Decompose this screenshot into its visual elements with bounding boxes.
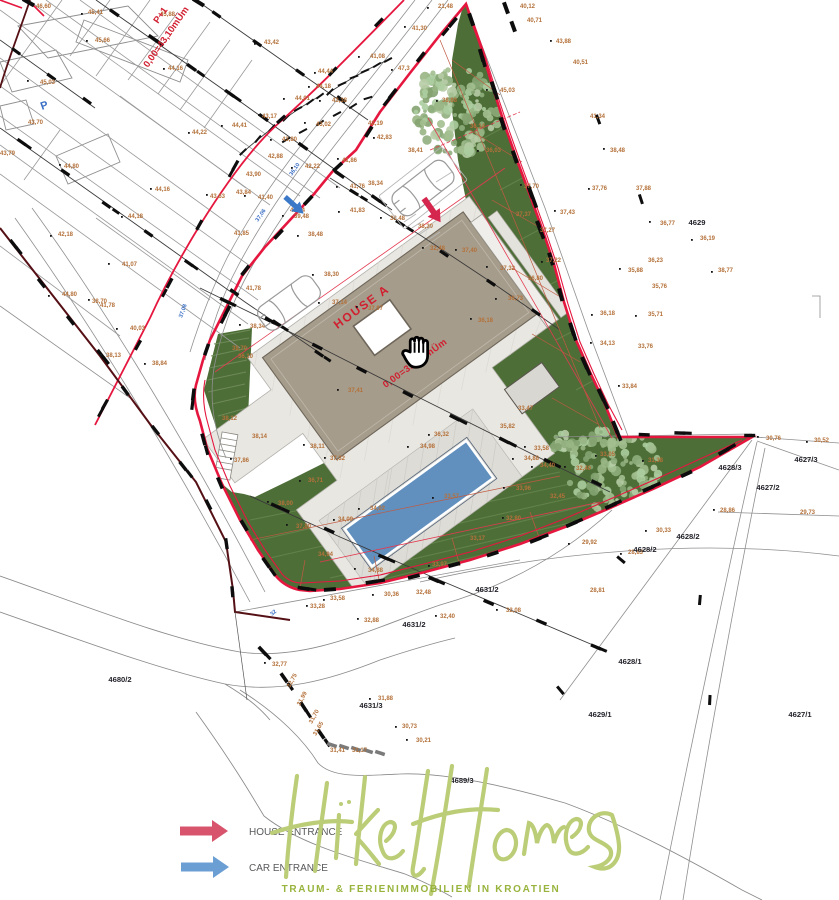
svg-text:33,84: 33,84: [622, 384, 638, 390]
svg-text:32,88: 32,88: [364, 618, 380, 624]
svg-text:4628/2: 4628/2: [633, 545, 656, 554]
svg-text:44,41: 44,41: [232, 123, 248, 129]
svg-text:44,18: 44,18: [128, 214, 144, 220]
svg-text:43,02: 43,02: [316, 122, 332, 128]
svg-text:44,80: 44,80: [62, 292, 78, 298]
svg-text:31,41: 31,41: [330, 748, 346, 754]
svg-text:34,88: 34,88: [368, 568, 384, 574]
svg-text:32,40: 32,40: [576, 466, 592, 472]
svg-text:38,13: 38,13: [106, 353, 122, 359]
svg-text:4627/3: 4627/3: [794, 455, 817, 464]
svg-text:34,88: 34,88: [524, 456, 540, 462]
svg-text:45,03: 45,03: [40, 80, 56, 86]
svg-text:44,16: 44,16: [168, 66, 184, 72]
svg-text:32,48: 32,48: [416, 590, 432, 596]
svg-text:4680/2: 4680/2: [108, 675, 131, 684]
svg-text:4628/2: 4628/2: [676, 532, 699, 541]
svg-text:38,00: 38,00: [278, 501, 294, 507]
svg-text:37,41: 37,41: [348, 388, 364, 394]
svg-text:34,09: 34,09: [338, 517, 354, 523]
svg-text:42,19: 42,19: [368, 121, 384, 127]
svg-text:47,3: 47,3: [398, 66, 410, 72]
svg-text:44,80: 44,80: [64, 164, 80, 170]
svg-text:37,32: 37,32: [500, 266, 516, 272]
svg-text:43,63: 43,63: [210, 194, 226, 200]
svg-text:41,83: 41,83: [350, 208, 366, 214]
svg-text:37,86: 37,86: [234, 458, 250, 464]
svg-text:38,84: 38,84: [152, 361, 168, 367]
svg-text:44,01: 44,01: [295, 96, 311, 102]
svg-text:44,22: 44,22: [192, 130, 208, 136]
svg-text:28,81: 28,81: [590, 588, 606, 594]
svg-text:36,73: 36,73: [508, 296, 524, 302]
svg-text:36,80: 36,80: [528, 276, 544, 282]
svg-text:37,76: 37,76: [592, 186, 608, 192]
svg-text:30,21: 30,21: [416, 738, 432, 744]
svg-text:37,40: 37,40: [462, 248, 478, 254]
svg-text:43,80: 43,80: [282, 137, 298, 143]
svg-text:33,28: 33,28: [310, 604, 326, 610]
svg-text:4627/1: 4627/1: [788, 710, 812, 719]
svg-text:37,43: 37,43: [560, 210, 576, 216]
svg-text:46,60: 46,60: [36, 4, 52, 10]
svg-text:43,88: 43,88: [556, 39, 572, 45]
svg-text:38,88: 38,88: [442, 98, 458, 104]
svg-text:33,17: 33,17: [470, 536, 486, 542]
svg-text:41,08: 41,08: [370, 54, 386, 60]
svg-text:36,03: 36,03: [486, 148, 502, 154]
svg-text:38,77: 38,77: [718, 268, 734, 274]
svg-text:21,48: 21,48: [438, 4, 454, 10]
svg-text:44,16: 44,16: [155, 187, 171, 193]
svg-text:43,84: 43,84: [236, 190, 252, 196]
svg-text:38,34: 38,34: [250, 324, 266, 330]
svg-text:43,70: 43,70: [28, 120, 44, 126]
svg-text:35,71: 35,71: [648, 312, 664, 318]
svg-text:4631/3: 4631/3: [359, 701, 382, 710]
svg-text:30,36: 30,36: [384, 592, 400, 598]
svg-text:38,30: 38,30: [324, 272, 340, 278]
svg-text:28,86: 28,86: [720, 508, 736, 514]
svg-text:41,76: 41,76: [350, 184, 366, 190]
svg-text:32,08: 32,08: [506, 608, 522, 614]
svg-text:30,73: 30,73: [402, 724, 418, 730]
svg-text:43,17: 43,17: [262, 114, 278, 120]
svg-text:43,79: 43,79: [0, 151, 16, 157]
svg-text:36,14: 36,14: [470, 124, 486, 130]
svg-text:37,97: 37,97: [368, 306, 384, 312]
svg-text:29,92: 29,92: [582, 540, 598, 546]
svg-text:4627/2: 4627/2: [756, 483, 779, 492]
svg-text:29,73: 29,73: [800, 510, 816, 516]
svg-text:37,27: 37,27: [540, 228, 556, 234]
svg-text:43,42: 43,42: [264, 40, 280, 46]
svg-text:TRAUM- & FERIENIMMOBILIEN IN K: TRAUM- & FERIENIMMOBILIEN IN KROATIEN: [282, 884, 561, 895]
svg-text:4628/3: 4628/3: [718, 463, 741, 472]
svg-text:36,77: 36,77: [660, 221, 676, 227]
svg-text:HOUSE ENTRANCE: HOUSE ENTRANCE: [249, 827, 343, 838]
svg-text:36,71: 36,71: [308, 478, 324, 484]
svg-text:33,57: 33,57: [444, 494, 460, 500]
svg-text:34,94: 34,94: [318, 552, 334, 558]
svg-text:42,88: 42,88: [268, 154, 284, 160]
svg-text:34,02: 34,02: [370, 506, 386, 512]
svg-text:37,22: 37,22: [546, 258, 562, 264]
svg-text:33,76: 33,76: [638, 344, 654, 350]
svg-text:31,17: 31,17: [352, 748, 368, 754]
svg-text:38,14: 38,14: [252, 434, 268, 440]
svg-text:45,03: 45,03: [500, 88, 516, 94]
svg-text:30,33: 30,33: [656, 528, 672, 534]
svg-text:44,18: 44,18: [316, 84, 332, 90]
svg-text:38,48: 38,48: [308, 232, 324, 238]
svg-text:4631/2: 4631/2: [475, 585, 498, 594]
svg-text:41,40: 41,40: [258, 195, 274, 201]
svg-text:38,12: 38,12: [222, 416, 238, 422]
svg-text:43,90: 43,90: [246, 172, 262, 178]
svg-text:4689/3: 4689/3: [450, 776, 473, 785]
svg-text:38,70: 38,70: [232, 346, 248, 352]
svg-text:32,40: 32,40: [440, 614, 456, 620]
svg-text:36,10: 36,10: [238, 354, 254, 360]
svg-text:40,12: 40,12: [520, 4, 536, 10]
svg-text:35,82: 35,82: [500, 424, 516, 430]
svg-text:38,48: 38,48: [610, 148, 626, 154]
svg-text:38,70: 38,70: [92, 299, 108, 305]
svg-text:38,11: 38,11: [310, 444, 325, 450]
svg-text:42,83: 42,83: [377, 135, 393, 141]
svg-text:33,47: 33,47: [518, 406, 534, 412]
svg-text:37,14: 37,14: [332, 300, 348, 306]
svg-text:36,18: 36,18: [600, 311, 616, 317]
svg-text:34,13: 34,13: [600, 341, 616, 347]
svg-text:30,52: 30,52: [814, 438, 830, 444]
svg-text:37,88: 37,88: [636, 186, 652, 192]
svg-text:36,23: 36,23: [648, 258, 664, 264]
svg-text:37,32: 37,32: [330, 456, 346, 462]
svg-text:34,40: 34,40: [540, 463, 556, 469]
svg-text:45,41: 45,41: [88, 10, 104, 16]
svg-text:33,58: 33,58: [534, 446, 550, 452]
svg-text:41,85: 41,85: [234, 231, 250, 237]
svg-text:33,05: 33,05: [600, 452, 616, 458]
svg-text:43,38: 43,38: [332, 98, 348, 104]
svg-text:36,18: 36,18: [478, 318, 494, 324]
svg-text:4631/2: 4631/2: [402, 620, 425, 629]
svg-text:36,19: 36,19: [700, 236, 716, 242]
svg-text:41,78: 41,78: [246, 286, 262, 292]
svg-text:41,34: 41,34: [590, 114, 606, 120]
svg-text:38,34: 38,34: [368, 181, 384, 187]
svg-text:37,70: 37,70: [524, 184, 540, 190]
svg-text:4629: 4629: [689, 218, 706, 227]
svg-text:30,76: 30,76: [766, 436, 782, 442]
svg-text:33,58: 33,58: [330, 596, 346, 602]
svg-text:44,44: 44,44: [318, 69, 334, 75]
svg-text:4629/1: 4629/1: [588, 710, 612, 719]
svg-text:36,32: 36,32: [434, 432, 450, 438]
svg-text:40,03: 40,03: [130, 326, 146, 332]
svg-text:4628/1: 4628/1: [618, 657, 642, 666]
svg-text:37,80: 37,80: [296, 524, 312, 530]
svg-text:35,88: 35,88: [628, 268, 644, 274]
svg-text:41,07: 41,07: [122, 262, 138, 268]
svg-text:32,48: 32,48: [430, 246, 446, 252]
svg-text:33,97: 33,97: [432, 562, 448, 568]
svg-text:32,77: 32,77: [272, 662, 288, 668]
svg-text:37,37: 37,37: [516, 212, 532, 218]
svg-text:31,38: 31,38: [648, 458, 664, 464]
svg-text:40,71: 40,71: [527, 18, 543, 24]
svg-text:34,98: 34,98: [420, 444, 436, 450]
svg-text:35,76: 35,76: [652, 284, 668, 290]
svg-text:38,41: 38,41: [408, 148, 424, 154]
svg-text:40,51: 40,51: [573, 60, 589, 66]
svg-text:41,86: 41,86: [342, 158, 358, 164]
svg-text:45,66: 45,66: [95, 38, 111, 44]
svg-text:33,96: 33,96: [516, 486, 532, 492]
svg-text:41,30: 41,30: [412, 26, 428, 32]
svg-text:39,48: 39,48: [294, 214, 310, 220]
svg-text:42,22: 42,22: [305, 164, 321, 170]
svg-text:42,18: 42,18: [58, 232, 74, 238]
svg-text:32,80: 32,80: [506, 516, 522, 522]
svg-text:32,45: 32,45: [550, 494, 566, 500]
